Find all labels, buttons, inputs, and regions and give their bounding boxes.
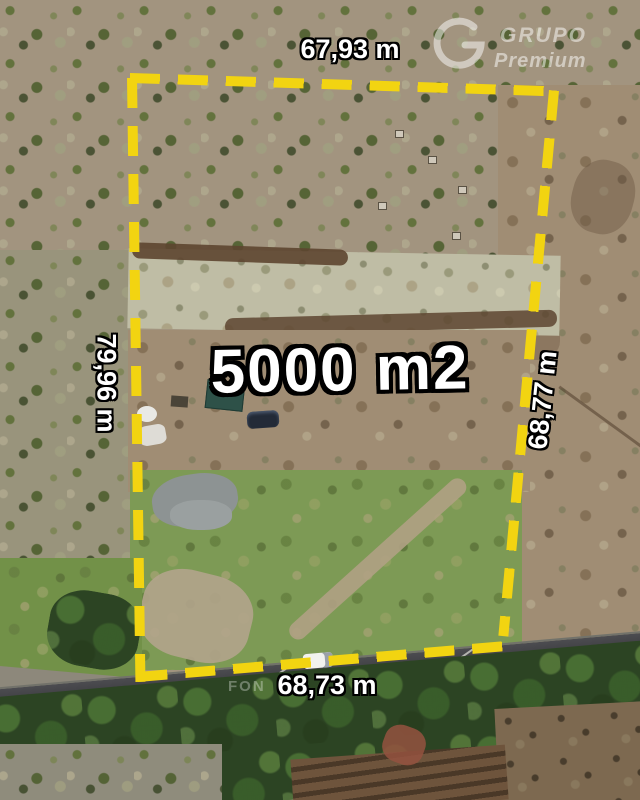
field-box (395, 130, 404, 138)
small-shed (171, 395, 189, 407)
area-label: 5000 m2 (210, 332, 470, 408)
field-bottom-right (494, 701, 640, 800)
measurement-left: 79,96 m (91, 333, 122, 432)
field-box (452, 232, 461, 240)
brand-logo-icon (428, 14, 490, 81)
field-box (428, 156, 437, 164)
measurement-top: 67,93 m (250, 34, 450, 65)
faint-watermark-text: FON (228, 678, 266, 695)
brand-name-top: GRUPO (500, 24, 587, 48)
aerial-photo: 67,93 m 79,96 m 68,77 m 68,73 m 5000 m2 … (0, 0, 640, 800)
parked-car-dark (246, 410, 279, 429)
scrub-bottom-left (0, 744, 222, 800)
brand-name-bottom: Premium (494, 50, 587, 73)
brand-watermark: GRUPO Premium (428, 12, 640, 82)
pond-shallow (170, 500, 232, 530)
field-box (458, 186, 467, 194)
field-box (378, 202, 387, 210)
